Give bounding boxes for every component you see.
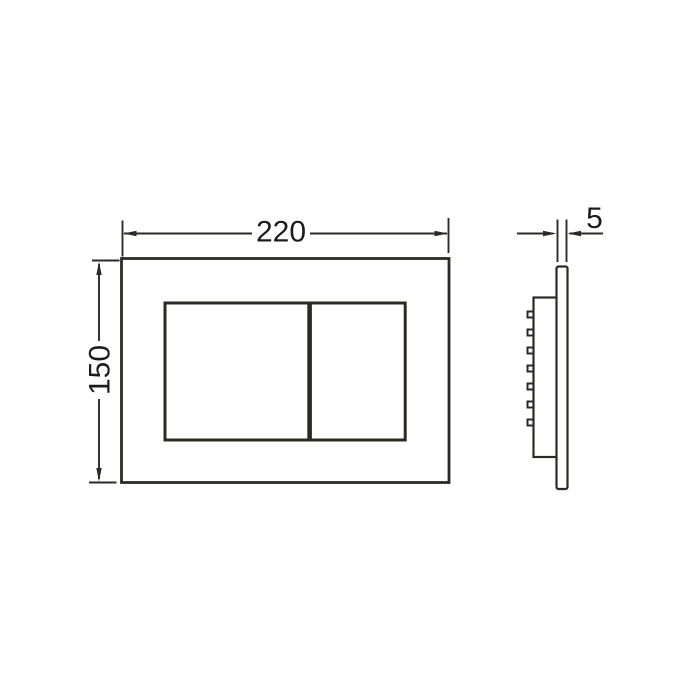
width-dimension-label: 220: [256, 216, 306, 249]
arrowhead-down-icon: [96, 468, 101, 482]
mounting-frame-profile: [534, 298, 559, 458]
front-view: [122, 259, 450, 483]
thickness-dimension-label: 5: [586, 202, 603, 235]
arrowhead-right-icon: [543, 231, 557, 236]
plate-side-profile: [557, 267, 568, 490]
small-flush-button: [310, 303, 405, 440]
arrowhead-right-icon: [435, 231, 449, 236]
arrowhead-up-icon: [96, 262, 101, 276]
height-dimension-label: 150: [84, 345, 117, 395]
drawing-canvas: 220 150: [0, 0, 700, 700]
arrowhead-left-icon: [568, 231, 582, 236]
side-view: [528, 267, 568, 490]
arrowhead-left-icon: [123, 231, 137, 236]
technical-drawing: 220 150: [0, 0, 700, 700]
large-flush-button: [165, 303, 309, 440]
